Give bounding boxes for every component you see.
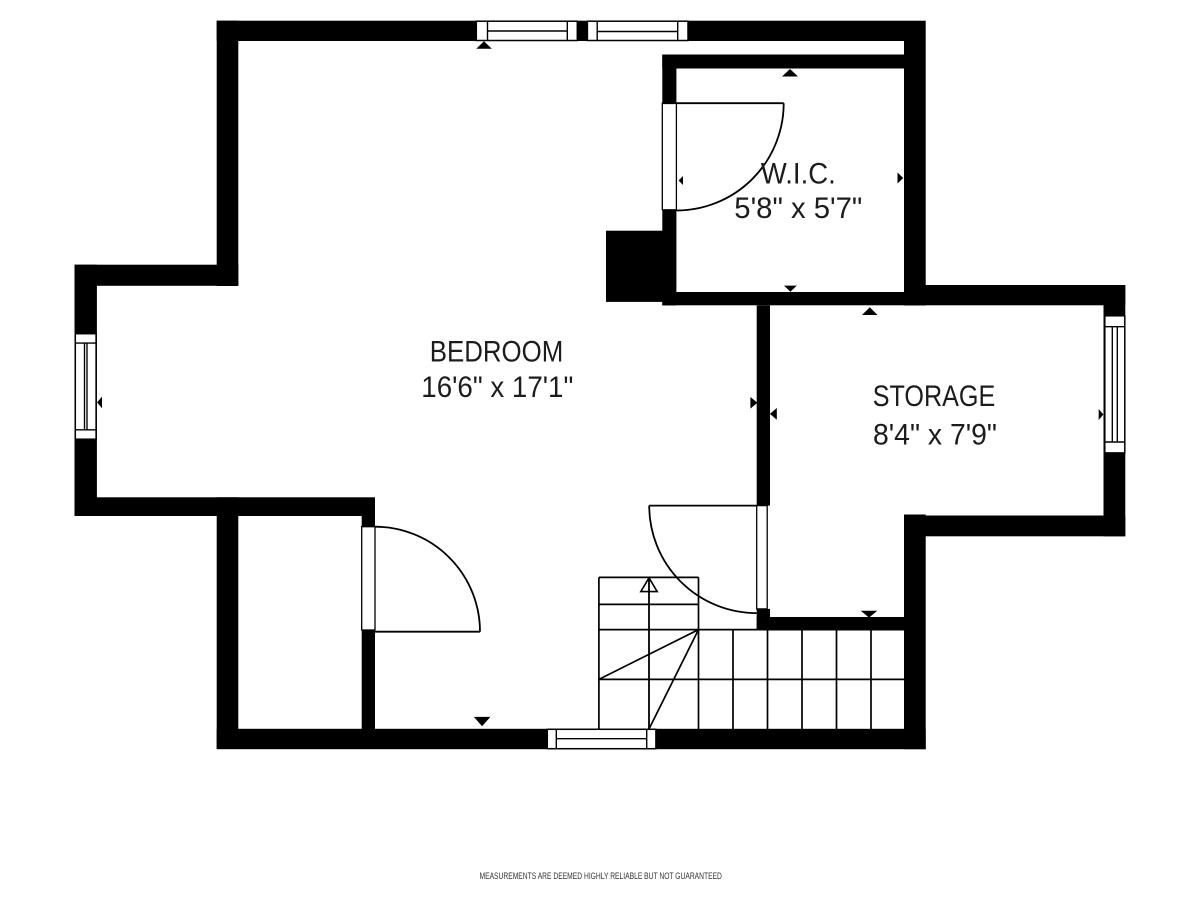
svg-text:16'6" x 17'1": 16'6" x 17'1" — [421, 371, 573, 404]
svg-text:MEASUREMENTS ARE DEEMED HIGHLY: MEASUREMENTS ARE DEEMED HIGHLY RELIABLE … — [480, 871, 723, 881]
svg-text:BEDROOM: BEDROOM — [430, 336, 564, 369]
svg-text:W.I.C.: W.I.C. — [761, 158, 836, 191]
svg-text:5'8" x 5'7": 5'8" x 5'7" — [734, 192, 862, 225]
svg-text:8'4" x 7'9": 8'4" x 7'9" — [873, 419, 997, 452]
svg-text:STORAGE: STORAGE — [873, 380, 996, 413]
